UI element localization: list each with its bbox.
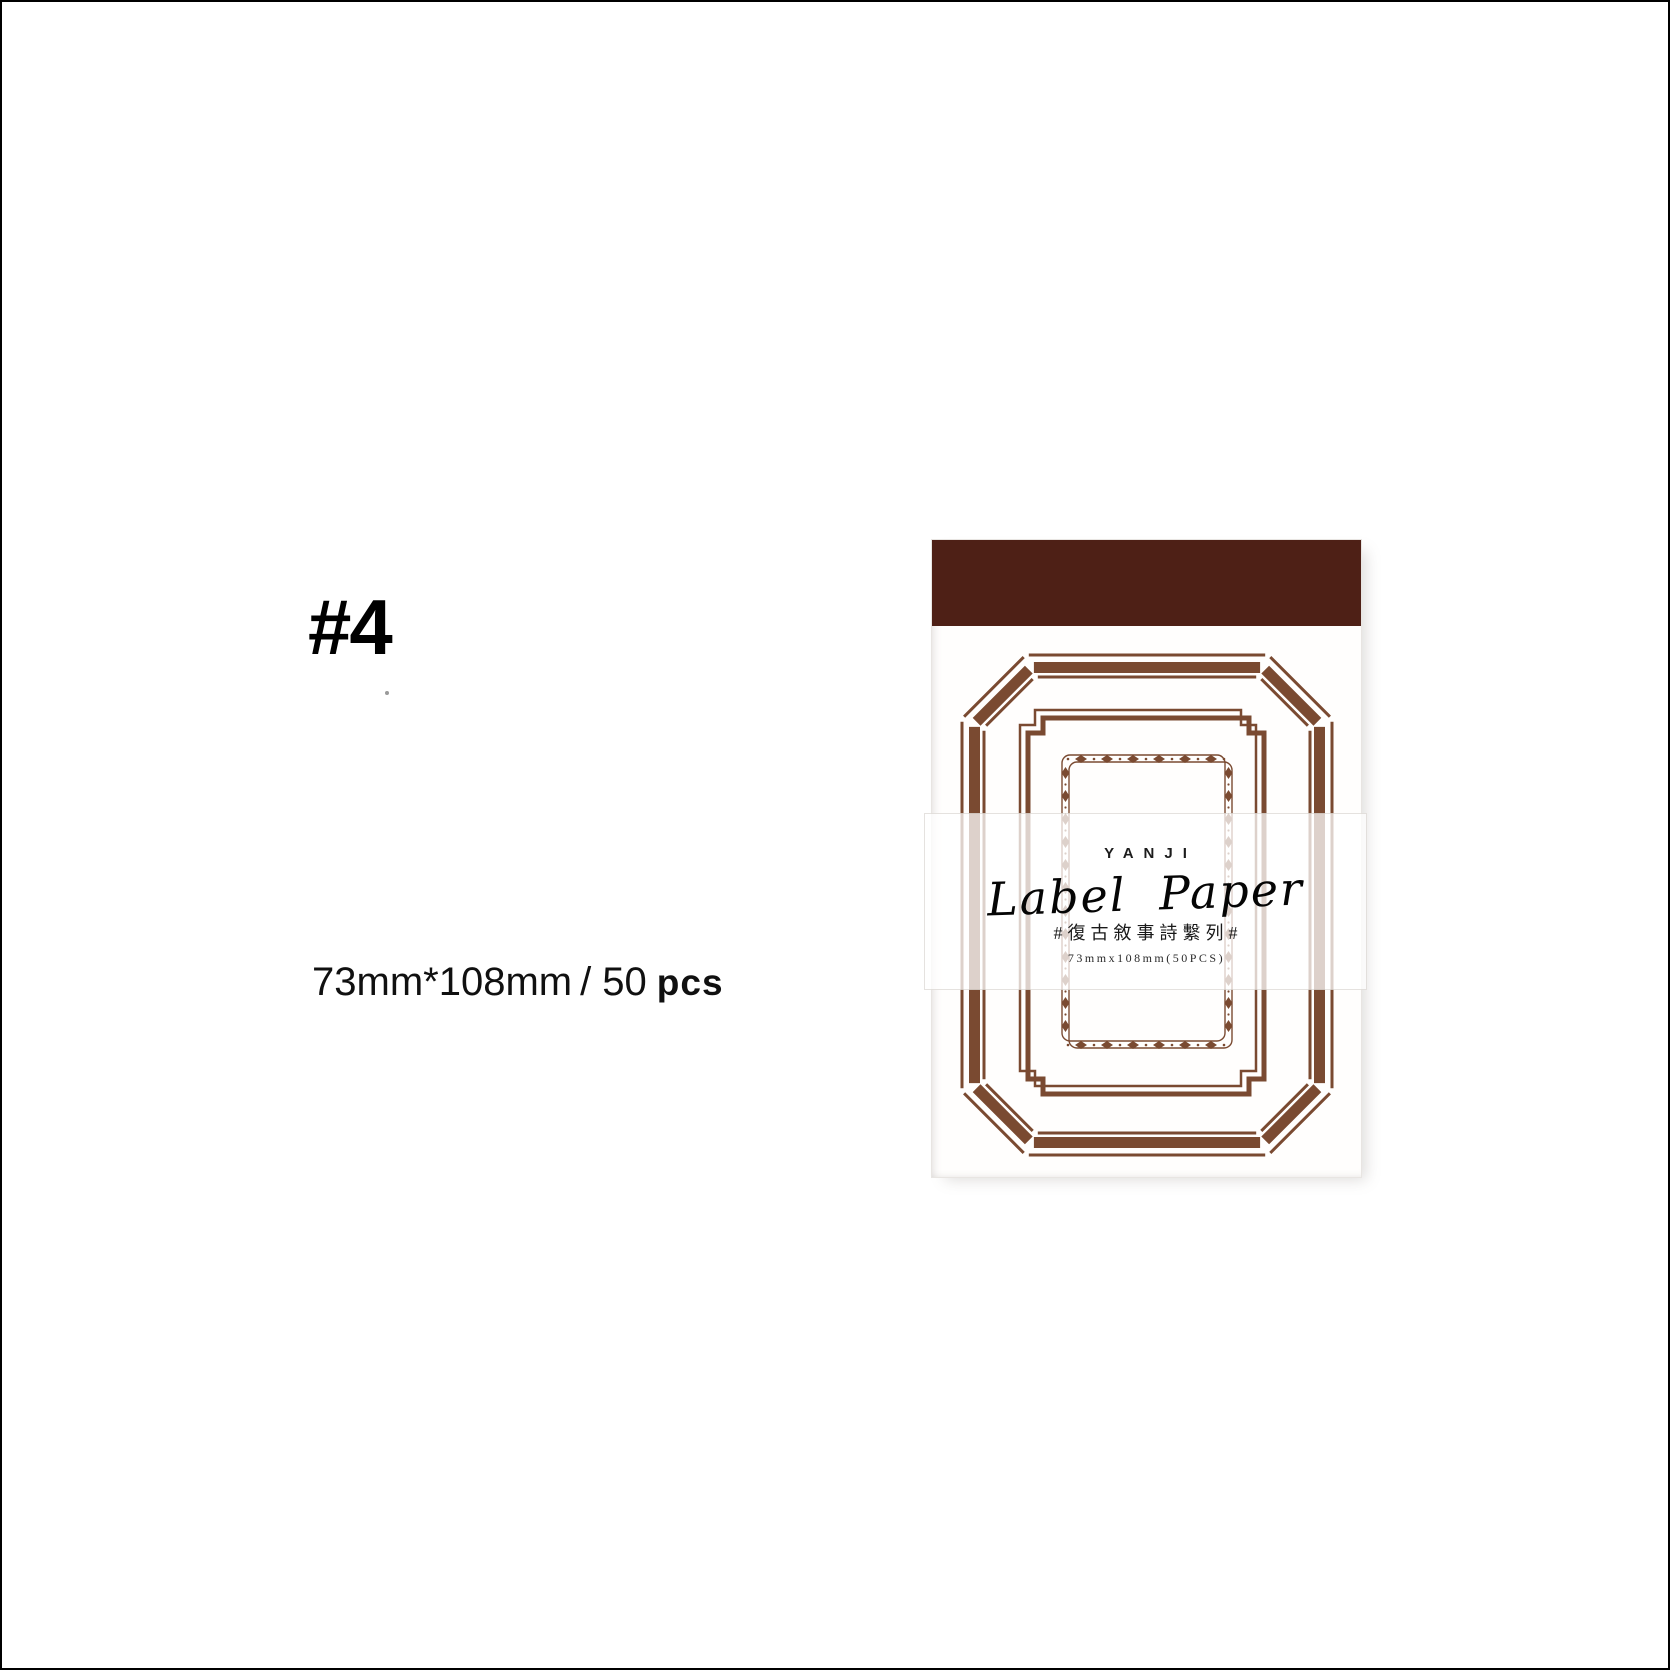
product-title: Label Paper — [986, 863, 1305, 925]
variant-index-label: #4 — [308, 588, 391, 666]
series-name: #復古敘事詩繫列# — [1049, 923, 1243, 945]
size-caption: 73mm*108mm/ 50pcs — [312, 962, 724, 1002]
page-canvas: #4 73mm*108mm/ 50pcs YANJI Label Paper #… — [0, 0, 1670, 1670]
wrap-band-label: YANJI Label Paper #復古敘事詩繫列# 73mmx108mm(5… — [924, 813, 1367, 990]
size-unit: pcs — [657, 962, 724, 1003]
size-dimensions: 73mm*108mm — [312, 960, 572, 1004]
brand-name: YANJI — [1094, 846, 1197, 861]
spec-text: 73mmx108mm(50PCS) — [1066, 952, 1225, 964]
size-count: / 50 — [580, 960, 647, 1004]
stray-dot — [385, 691, 389, 695]
